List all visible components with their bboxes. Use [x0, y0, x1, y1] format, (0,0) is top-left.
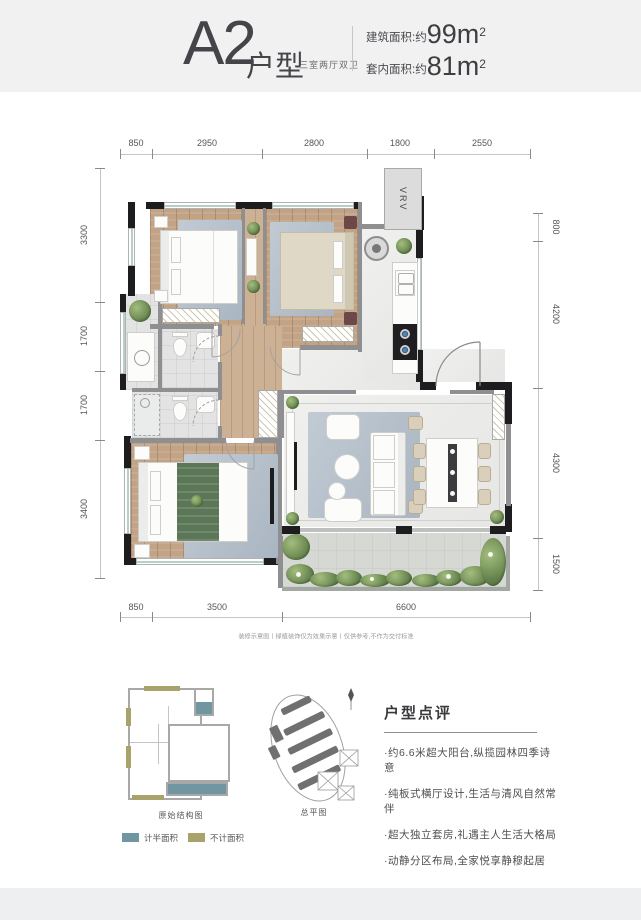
nightstand	[134, 446, 150, 460]
sliding-door	[412, 528, 490, 532]
plant	[490, 510, 504, 524]
dim-bottom-3: 6600	[386, 602, 426, 612]
kitchen-sink	[395, 270, 415, 296]
dim-right-4: 1500	[551, 550, 561, 578]
stove	[393, 324, 417, 360]
dining-chair	[413, 489, 426, 505]
dining-chair	[478, 466, 491, 482]
dim-bottom-2: 3500	[197, 602, 237, 612]
no-area-patch	[144, 686, 180, 691]
sofa-cushion	[373, 490, 395, 515]
plan-title-suffix: 户型	[246, 43, 304, 85]
coffee-table	[328, 482, 346, 500]
balcony-parapet	[506, 536, 510, 591]
legend-swatch-no-area	[188, 833, 205, 842]
dim-line	[120, 617, 530, 618]
console-table	[246, 238, 257, 276]
wall	[132, 388, 220, 392]
sofa-back	[398, 433, 405, 515]
wall	[218, 392, 222, 400]
window	[128, 228, 135, 266]
toilet-tank	[172, 332, 188, 337]
no-area-patch	[132, 795, 164, 800]
plate	[450, 449, 455, 454]
structure-diagram	[118, 686, 244, 808]
wall	[505, 504, 512, 532]
range-hood	[364, 236, 389, 261]
vrv-label: VRV	[398, 187, 408, 211]
legend-label-half-area: 计半面积	[144, 832, 178, 844]
wall	[476, 382, 512, 390]
pillow	[171, 237, 181, 263]
pillow	[171, 269, 181, 295]
legend-label-no-area: 不计面积	[210, 832, 244, 844]
review-block: 户型点评 ·约6.6米超大阳台,纵揽园林四季诗意 ·纯板式横厅设计,生活与清风自…	[384, 702, 560, 879]
nightstand	[154, 216, 168, 228]
burner	[400, 329, 410, 339]
nightstand	[344, 216, 357, 229]
dim-top-1: 850	[116, 138, 156, 148]
bench	[324, 498, 362, 522]
nightstand	[134, 544, 150, 558]
vrv-platform: VRV	[384, 168, 422, 230]
dim-line	[100, 168, 101, 578]
wall	[420, 382, 436, 390]
headboard	[139, 463, 148, 541]
plant-sprig	[191, 495, 203, 507]
wall	[416, 228, 423, 258]
dim-tick	[95, 168, 105, 169]
header: A2 户型 三室两厅双卫 建筑面积:约99m2 套内面积:约81m2	[0, 0, 641, 92]
balcony-plant	[386, 570, 412, 586]
wall	[284, 390, 356, 394]
wall	[450, 390, 494, 394]
wall	[396, 526, 412, 534]
dining-chair	[413, 466, 426, 482]
wall	[263, 208, 266, 324]
plant	[396, 238, 412, 254]
wardrobe	[162, 308, 220, 323]
tv	[270, 468, 274, 524]
dim-tick	[533, 213, 543, 214]
side-table	[408, 416, 423, 430]
net-area-sup: 2	[479, 57, 486, 71]
hood-center	[372, 244, 381, 253]
balcony-plant	[480, 538, 506, 586]
mini-outline	[168, 724, 230, 782]
headboard	[345, 233, 353, 309]
tv	[294, 442, 297, 490]
review-divider	[384, 732, 537, 733]
floor-plan: VRV	[120, 166, 532, 596]
burner	[400, 345, 410, 355]
wall	[124, 534, 131, 558]
wall	[128, 202, 135, 228]
washer-drum	[134, 350, 150, 366]
sink-bowl	[398, 273, 414, 284]
wash-basin	[196, 332, 215, 349]
toilet-tank	[172, 396, 188, 401]
gross-area-sup: 2	[479, 25, 486, 39]
wall	[146, 202, 164, 209]
net-area-label: 套内面积:约	[366, 61, 427, 80]
plant	[129, 300, 151, 322]
entry-floor	[422, 349, 505, 382]
site-plan-label: 总平图	[256, 807, 372, 818]
structure-diagram-label: 原始结构图	[118, 810, 244, 821]
dim-top-2: 2950	[187, 138, 227, 148]
dining-table	[426, 438, 478, 508]
review-bullet: ·纯板式横厅设计,生活与清风自然常伴	[384, 786, 560, 816]
double-bed	[160, 230, 238, 304]
plate	[450, 470, 455, 475]
wall	[505, 390, 512, 424]
dim-top-4: 1800	[380, 138, 420, 148]
wall	[242, 208, 245, 324]
dim-left-2: 1700	[79, 322, 89, 350]
dining-chair	[478, 443, 491, 459]
pillow	[150, 505, 161, 535]
wardrobe	[302, 326, 354, 342]
sofa	[370, 432, 406, 516]
wall	[120, 374, 126, 390]
wall	[282, 526, 300, 534]
gross-area-value: 99m	[427, 21, 480, 48]
plate	[450, 491, 455, 496]
sideboard	[492, 394, 505, 440]
review-bullet: ·约6.6米超大阳台,纵揽园林四季诗意	[384, 745, 560, 775]
wall	[300, 345, 358, 350]
dim-top-3: 2800	[294, 138, 334, 148]
window	[120, 312, 126, 374]
legend-swatch-half-area	[122, 833, 139, 842]
nightstand	[154, 290, 168, 302]
dim-line	[120, 154, 530, 155]
window	[136, 558, 264, 565]
wall	[128, 266, 135, 296]
flower	[370, 577, 374, 581]
plan-title: A2	[183, 13, 255, 75]
wall	[120, 294, 126, 312]
north-arrow-icon	[348, 688, 354, 710]
no-area-patch	[126, 746, 131, 768]
gross-area-label: 建筑面积:约	[366, 29, 427, 48]
window	[272, 202, 354, 209]
dim-right-3: 4300	[551, 449, 561, 477]
half-area-balcony	[166, 782, 228, 796]
net-area: 套内面积:约81m2	[366, 53, 486, 80]
dim-left-1: 3300	[79, 221, 89, 249]
wash-basin	[196, 396, 215, 413]
wall	[130, 438, 226, 443]
plant	[286, 396, 299, 409]
mini-inner-wall	[130, 742, 168, 743]
sink-bowl	[398, 284, 414, 295]
dim-tick	[120, 149, 121, 159]
washing-machine	[127, 332, 155, 382]
flower	[488, 552, 493, 557]
pillow	[333, 275, 343, 303]
gross-area: 建筑面积:约99m2	[366, 21, 486, 48]
master-bed	[138, 462, 248, 542]
wall	[278, 390, 284, 438]
dim-left-4: 3400	[79, 495, 89, 523]
dim-left-3: 1700	[79, 391, 89, 419]
dim-right-2: 4200	[551, 300, 561, 328]
plan-subtitle: 三室两厅双卫	[299, 58, 359, 71]
flower	[446, 574, 451, 579]
wall	[506, 424, 511, 506]
double-bed	[280, 232, 354, 310]
wall	[218, 324, 222, 336]
disclaimer: 装修示意图丨绿植装饰仅为效果示意丨仅供参考,不作为交付标准	[198, 631, 453, 640]
header-divider	[352, 26, 353, 71]
net-area-value: 81m	[427, 53, 480, 80]
dim-bottom-1: 850	[116, 602, 156, 612]
window	[124, 468, 131, 534]
dim-line	[538, 213, 539, 590]
blanket-fold	[213, 231, 214, 303]
dim-tick	[120, 612, 121, 622]
pillow	[333, 241, 343, 269]
flower	[296, 572, 301, 577]
pillow	[150, 471, 161, 501]
balcony-plant	[282, 534, 310, 560]
plant	[286, 512, 299, 525]
review-title: 户型点评	[384, 702, 560, 723]
dining-chair	[413, 443, 426, 459]
wall	[124, 558, 136, 565]
no-area-patch	[126, 708, 131, 726]
dim-right-1: 800	[551, 213, 561, 241]
plant	[247, 280, 260, 293]
review-bullet: ·超大独立套房,礼遇主人生活大格局	[384, 827, 560, 842]
dining-chair	[478, 489, 491, 505]
sofa-cushion	[373, 462, 395, 488]
site-plan	[256, 686, 372, 804]
half-area-patch	[196, 702, 212, 714]
hallway-cabinet	[258, 390, 278, 438]
sofa-cushion	[373, 435, 395, 460]
balcony-parapet	[282, 587, 510, 591]
wall	[490, 526, 506, 534]
coffee-table	[334, 454, 360, 480]
review-bullet: ·动静分区布局,全家悦享静穆起居	[384, 853, 560, 868]
mini-inner-wall	[168, 706, 169, 724]
footer-band	[0, 888, 641, 920]
nightstand	[344, 312, 357, 325]
armchair	[326, 414, 360, 440]
window	[164, 202, 236, 209]
shower-head	[140, 398, 150, 408]
dim-top-5: 2550	[462, 138, 502, 148]
plant	[247, 222, 260, 235]
mini-inner-wall	[158, 724, 159, 764]
sliding-door	[300, 528, 396, 532]
balcony-plant	[336, 570, 362, 586]
